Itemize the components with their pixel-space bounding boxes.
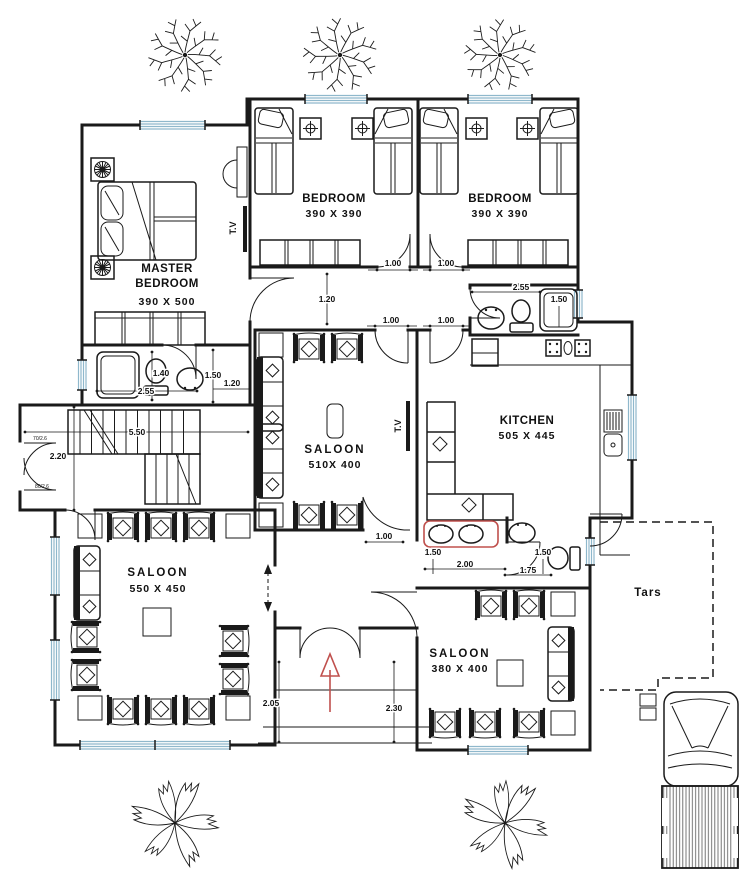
room-label-bedroom-right: BEDROOM: [468, 193, 532, 205]
entrance-arrow-icon: [321, 654, 339, 712]
room-size-saloon-left: 550 X 450: [130, 583, 187, 595]
passage-arrow-icon: [264, 564, 272, 612]
dim-wc-b: 2.00: [457, 559, 474, 569]
dim-saloon-door: 1.00: [383, 315, 400, 325]
dim-kitchen-door: 1.00: [438, 315, 455, 325]
door-tag-top: 70/2.6: [33, 436, 47, 442]
staircase: [68, 410, 200, 504]
dim-mbath-c: 1.50: [205, 370, 222, 380]
room-size-kitchen: 505 X 445: [499, 430, 556, 442]
dim-porch-a: 2.05: [263, 698, 280, 708]
room-label-saloon-front: SALOON: [429, 648, 490, 660]
room-size-saloon-front: 380 X 400: [432, 663, 489, 675]
dim-wc-door: 1.00: [376, 531, 393, 541]
dim-wc-d: 1.75: [520, 565, 537, 575]
palm-tree-icon: [130, 772, 556, 873]
dim-bedroom2-door: 1.00: [438, 258, 455, 268]
room-label-terrace: Tars: [634, 587, 661, 599]
floor-plan-drawing: T.V T.V: [0, 0, 741, 873]
dim-porch-b: 2.30: [386, 703, 403, 713]
dim-bath-width: 2.55: [513, 282, 530, 292]
door-tag-bottom: 80/2.6: [35, 484, 49, 490]
room-size-saloon-center: 510X 400: [309, 459, 362, 471]
tv-label-master: T.V: [228, 221, 238, 234]
room-label-bedroom-left: BEDROOM: [302, 193, 366, 205]
dim-hall-height: 1.20: [319, 294, 336, 304]
terrace-step: [640, 708, 656, 720]
dim-bedroom1-door: 1.00: [385, 258, 402, 268]
terrace-outline: [600, 522, 713, 690]
dim-stairs-width: 2.20: [50, 451, 67, 461]
room-label-master-2: BEDROOM: [135, 278, 199, 290]
dim-mbath-a: 1.40: [153, 368, 170, 378]
room-label-master-1: MASTER: [141, 263, 193, 275]
saloon-center-furniture: [257, 333, 410, 532]
room-size-bedroom-right: 390 X 390: [472, 208, 529, 220]
dim-mbath-b: 2.55: [138, 386, 155, 396]
terrace-step: [640, 694, 656, 706]
tree-icon: [146, 8, 548, 104]
tv-label-saloon: T.V: [393, 419, 403, 432]
dim-wc-c: 1.50: [535, 547, 552, 557]
master-bedroom-furniture: [91, 147, 247, 345]
room-size-master: 390 X 500: [139, 296, 196, 308]
dim-mbath-d: 1.20: [224, 378, 241, 388]
floor-plan-canvas: T.V T.V: [0, 0, 741, 873]
room-label-saloon-left: SALOON: [127, 567, 188, 579]
room-size-bedroom-left: 390 X 390: [306, 208, 363, 220]
dim-wc-a: 1.50: [425, 547, 442, 557]
room-label-kitchen: KITCHEN: [500, 415, 555, 427]
truck-icon: [662, 692, 738, 868]
dim-stairs-length: 5.50: [129, 427, 146, 437]
wc-fixtures: [424, 521, 580, 570]
saloon-left-furniture: [71, 512, 250, 726]
room-label-saloon-center: SALOON: [304, 444, 365, 456]
dim-bath-shower: 1.50: [551, 294, 568, 304]
